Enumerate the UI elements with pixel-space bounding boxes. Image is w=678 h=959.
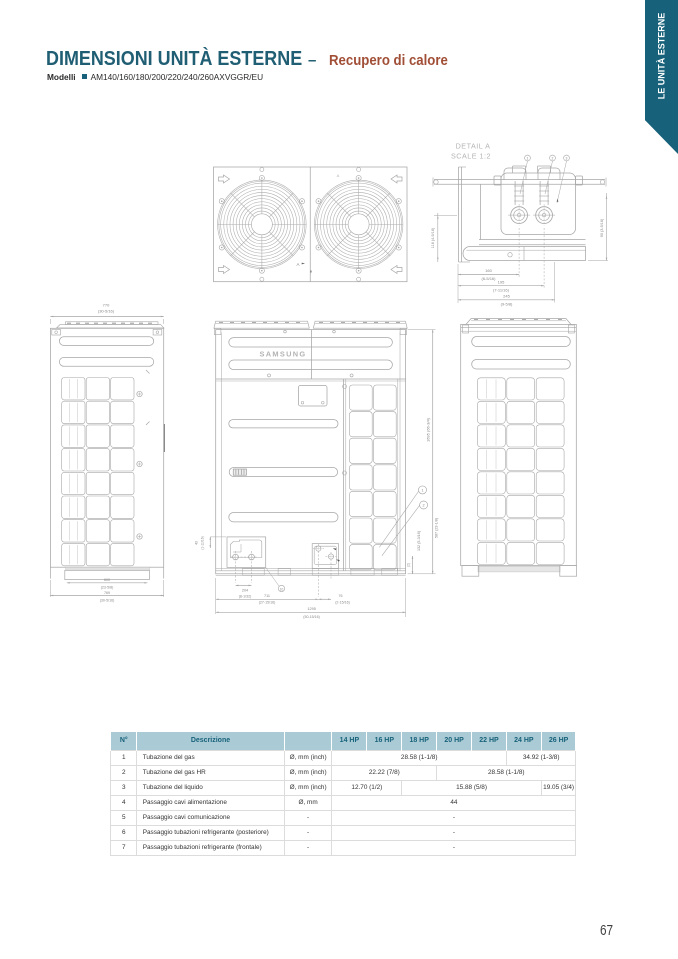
svg-text:(50-15/16): (50-15/16) xyxy=(303,615,320,619)
svg-text:A: A xyxy=(296,262,299,267)
svg-text:711: 711 xyxy=(264,594,270,598)
svg-text:132 (5-3/16): 132 (5-3/16) xyxy=(417,531,421,551)
svg-text:769: 769 xyxy=(104,591,110,595)
svg-text:(6-5/16): (6-5/16) xyxy=(481,276,496,281)
svg-text:3: 3 xyxy=(566,157,568,161)
svg-text:(8-1/32): (8-1/32) xyxy=(239,595,252,599)
svg-text:195: 195 xyxy=(498,279,505,284)
svg-text:(2): (2) xyxy=(406,563,410,567)
svg-text:SCALE 1:2: SCALE 1:2 xyxy=(451,152,491,161)
svg-text:(27-15/16): (27-15/16) xyxy=(259,601,276,605)
svg-text:(23-5/8): (23-5/8) xyxy=(101,586,114,590)
svg-text:(7-11/16): (7-11/16) xyxy=(493,287,510,292)
svg-text:1695 (66-3/4): 1695 (66-3/4) xyxy=(425,417,430,442)
svg-text:43: 43 xyxy=(195,541,199,545)
svg-text:(9-5/8): (9-5/8) xyxy=(501,302,513,307)
svg-text:10: 10 xyxy=(280,587,284,591)
svg-text:587 (23-1/8): 587 (23-1/8) xyxy=(435,518,439,538)
svg-text:160: 160 xyxy=(485,268,492,273)
svg-text:245: 245 xyxy=(503,294,510,299)
svg-text:2: 2 xyxy=(552,157,554,161)
svg-text:76: 76 xyxy=(339,594,343,598)
svg-text:SAMSUNG: SAMSUNG xyxy=(260,350,307,359)
svg-text:2: 2 xyxy=(423,504,425,508)
svg-text:A: A xyxy=(337,173,340,178)
svg-text:770: 770 xyxy=(103,303,110,308)
svg-text:90 (3-9/16): 90 (3-9/16) xyxy=(600,218,604,237)
svg-text:(30-5/16): (30-5/16) xyxy=(98,309,115,314)
svg-text:1: 1 xyxy=(527,157,529,161)
svg-text:1: 1 xyxy=(421,489,423,493)
svg-text:116 (4-9/16): 116 (4-9/16) xyxy=(431,227,435,248)
svg-text:(2-15/16): (2-15/16) xyxy=(335,601,350,605)
svg-text:DETAIL A: DETAIL A xyxy=(456,142,491,151)
svg-text:(1-11/16): (1-11/16) xyxy=(201,536,205,550)
svg-text:600: 600 xyxy=(104,578,110,582)
svg-text:(30-5/16): (30-5/16) xyxy=(100,598,115,602)
svg-text:204: 204 xyxy=(242,589,248,593)
svg-text:1295: 1295 xyxy=(307,607,315,611)
